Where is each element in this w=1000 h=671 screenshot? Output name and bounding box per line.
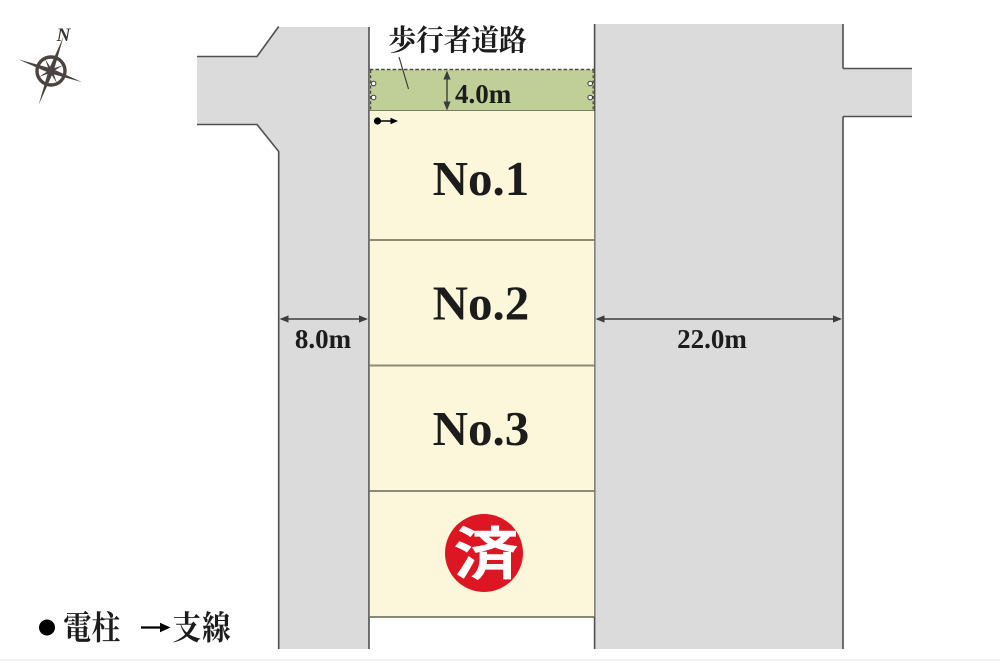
svg-text:4.0m: 4.0m — [455, 79, 512, 109]
svg-text:No.3: No.3 — [433, 401, 530, 456]
svg-text:22.0m: 22.0m — [677, 324, 747, 354]
svg-text:8.0m: 8.0m — [295, 324, 352, 354]
svg-text:No.2: No.2 — [433, 276, 530, 331]
svg-text:No.1: No.1 — [433, 151, 530, 206]
svg-text:N: N — [56, 25, 72, 46]
